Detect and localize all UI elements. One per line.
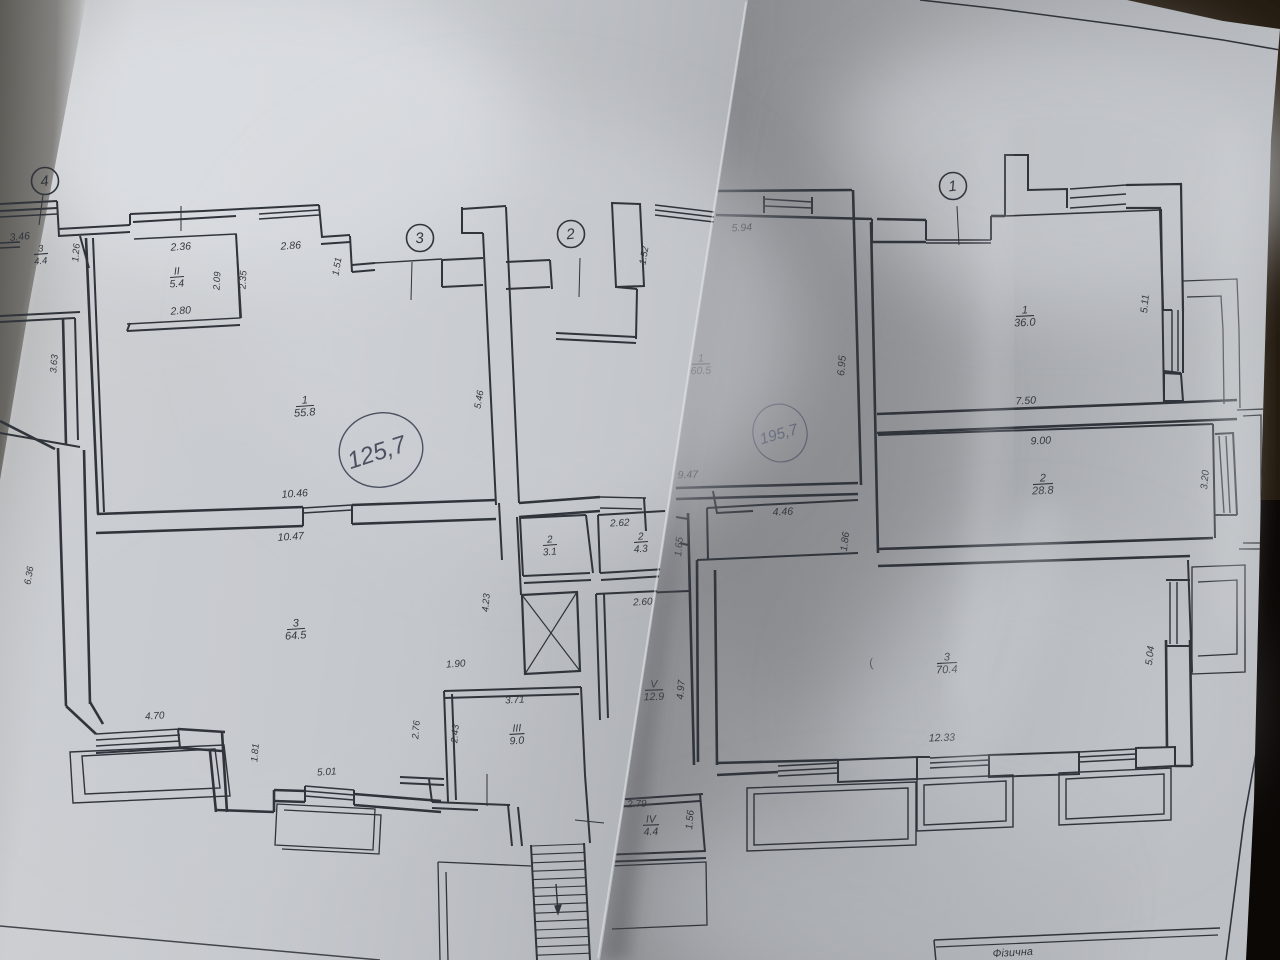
svg-text:1.90: 1.90 bbox=[446, 658, 467, 670]
svg-text:2.09: 2.09 bbox=[211, 271, 223, 292]
svg-text:1.26: 1.26 bbox=[70, 242, 83, 262]
svg-text:1.56: 1.56 bbox=[684, 809, 697, 830]
svg-text:3.63: 3.63 bbox=[48, 353, 61, 373]
svg-text:7.50: 7.50 bbox=[1015, 394, 1036, 407]
svg-text:28.8: 28.8 bbox=[1031, 484, 1055, 497]
svg-text:4.46: 4.46 bbox=[772, 506, 793, 519]
svg-text:3.71: 3.71 bbox=[505, 695, 525, 707]
svg-text:II: II bbox=[173, 265, 180, 277]
svg-text:5.4: 5.4 bbox=[169, 278, 185, 291]
svg-text:9.00: 9.00 bbox=[1030, 434, 1051, 447]
svg-text:2.62: 2.62 bbox=[609, 517, 630, 529]
svg-text:2.86: 2.86 bbox=[279, 239, 301, 252]
svg-text:10.47: 10.47 bbox=[277, 530, 305, 544]
svg-text:2: 2 bbox=[637, 531, 645, 542]
svg-text:2.76: 2.76 bbox=[410, 719, 423, 740]
svg-text:2.43: 2.43 bbox=[449, 723, 462, 744]
svg-text:4.23: 4.23 bbox=[480, 592, 493, 612]
svg-text:9.0: 9.0 bbox=[509, 735, 524, 748]
svg-text:1: 1 bbox=[947, 178, 957, 196]
svg-text:2: 2 bbox=[546, 534, 554, 545]
svg-text:5.11: 5.11 bbox=[1139, 294, 1152, 314]
svg-text:6.95: 6.95 bbox=[835, 355, 849, 377]
svg-text:III: III bbox=[512, 722, 521, 734]
svg-text:3.20: 3.20 bbox=[1199, 469, 1212, 490]
svg-text:2.80: 2.80 bbox=[169, 304, 191, 317]
svg-text:5.01: 5.01 bbox=[317, 766, 337, 778]
svg-text:4.4: 4.4 bbox=[643, 826, 658, 839]
svg-text:4.3: 4.3 bbox=[634, 544, 649, 556]
svg-text:2.35: 2.35 bbox=[237, 270, 249, 291]
svg-text:Фізична: Фізична bbox=[992, 946, 1033, 960]
svg-text:3.1: 3.1 bbox=[543, 547, 558, 559]
svg-text:4.97: 4.97 bbox=[675, 679, 688, 700]
svg-text:2.60: 2.60 bbox=[632, 596, 653, 608]
svg-text:4.70: 4.70 bbox=[145, 710, 166, 722]
svg-text:1.81: 1.81 bbox=[249, 743, 262, 762]
svg-text:2: 2 bbox=[1038, 472, 1046, 484]
svg-text:10.46: 10.46 bbox=[281, 487, 308, 501]
svg-text:2.36: 2.36 bbox=[169, 240, 191, 253]
svg-text:1: 1 bbox=[301, 394, 308, 406]
svg-text:64.5: 64.5 bbox=[285, 629, 308, 643]
svg-text:1: 1 bbox=[1021, 304, 1028, 316]
svg-text:4: 4 bbox=[39, 173, 49, 191]
svg-text:55.8: 55.8 bbox=[294, 406, 317, 420]
svg-text:IV: IV bbox=[646, 813, 657, 825]
svg-text:36.0: 36.0 bbox=[1014, 316, 1037, 329]
svg-text:4.4: 4.4 bbox=[34, 255, 48, 267]
